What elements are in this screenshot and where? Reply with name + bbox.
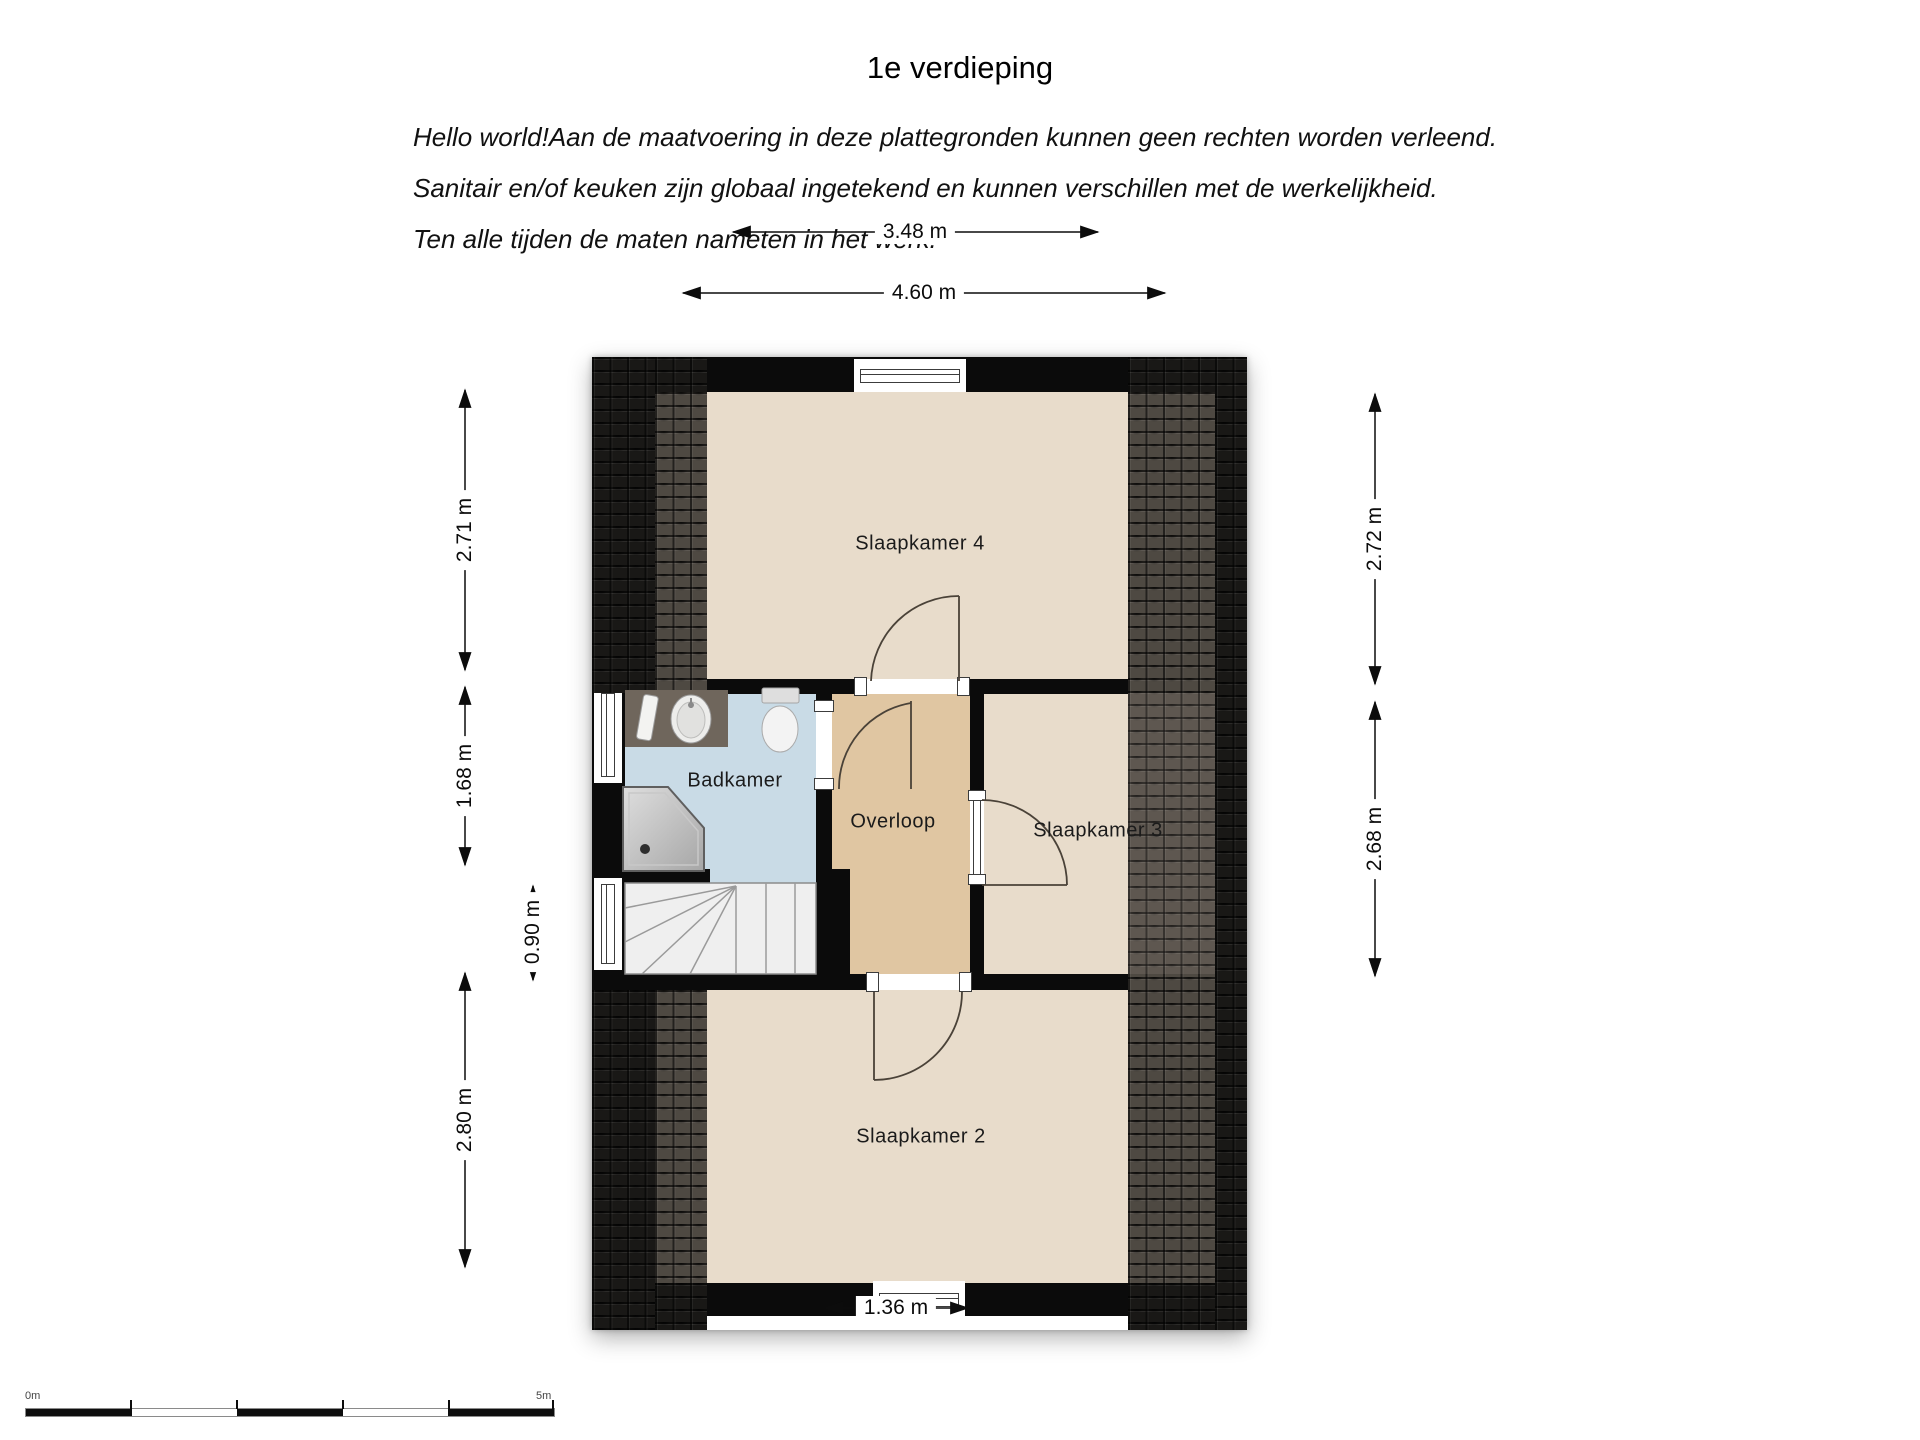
door-opening-slaapkamer-4 xyxy=(854,679,970,694)
dimension-top-inner: 3.48 m xyxy=(875,220,955,244)
scale-tick xyxy=(130,1400,132,1409)
room-label-slaapkamer-4: Slaapkamer 4 xyxy=(855,533,984,556)
window-top xyxy=(854,359,966,392)
window-left-badkamer xyxy=(594,687,622,783)
room-label-overloop: Overloop xyxy=(850,811,935,834)
dimension-left-upper: 2.71 m xyxy=(453,490,477,570)
scale-tick xyxy=(236,1400,238,1409)
scale-segment xyxy=(132,1409,238,1416)
scale-start-label: 0m xyxy=(25,1390,40,1402)
dimension-right-lower: 2.68 m xyxy=(1363,799,1387,879)
scale-end-label: 5m xyxy=(536,1390,551,1402)
scale-segment xyxy=(237,1409,343,1416)
scale-segment xyxy=(448,1409,554,1416)
door-opening-slaapkamer-3 xyxy=(970,790,984,885)
roof-corner-bottom-right xyxy=(1128,1283,1215,1330)
roof-left-inner-top xyxy=(655,392,707,693)
scale-segment xyxy=(26,1409,132,1416)
roof-left-outer-top xyxy=(592,357,655,693)
scale-bar xyxy=(25,1408,555,1417)
roof-corner-bottom-left xyxy=(655,1283,707,1330)
roof-left-inner-bottom xyxy=(655,990,707,1283)
wall-slaapkamer2-north xyxy=(592,974,1128,990)
window-left-stairs xyxy=(594,878,622,970)
floorplan-page: 1e verdieping Hello world!Aan de maatvoe… xyxy=(0,0,1920,1440)
room-label-slaapkamer-3: Slaapkamer 3 xyxy=(1033,820,1162,843)
dimension-left-middle: 1.68 m xyxy=(453,736,477,816)
page-title: 1e verdieping xyxy=(0,50,1920,86)
disclaimer-line-1: Hello world!Aan de maatvoering in deze p… xyxy=(413,112,1497,163)
roof-left-outer-bottom xyxy=(592,990,655,1330)
scale-tick xyxy=(342,1400,344,1409)
dimension-bottom: 1.36 m xyxy=(856,1296,936,1320)
dimension-top-outer: 4.60 m xyxy=(884,281,964,305)
room-label-slaapkamer-2: Slaapkamer 2 xyxy=(856,1126,985,1149)
wall-stairwell-east xyxy=(816,869,850,990)
disclaimer-line-2: Sanitair en/of keuken zijn globaal inget… xyxy=(413,163,1497,214)
dimension-left-lower: 2.80 m xyxy=(453,1080,477,1160)
scale-tick xyxy=(448,1400,450,1409)
room-label-badkamer: Badkamer xyxy=(687,770,782,793)
door-opening-slaapkamer-2 xyxy=(866,974,972,990)
roof-right-outer xyxy=(1215,357,1247,1330)
scale-segment xyxy=(343,1409,449,1416)
roof-corner-top-right xyxy=(1128,357,1215,392)
roof-corner-top-left xyxy=(655,357,707,392)
dimension-stair-width: 0.90 m xyxy=(521,892,545,972)
door-opening-badkamer xyxy=(816,700,832,790)
scale-tick xyxy=(552,1400,554,1409)
dimension-right-upper: 2.72 m xyxy=(1363,499,1387,579)
